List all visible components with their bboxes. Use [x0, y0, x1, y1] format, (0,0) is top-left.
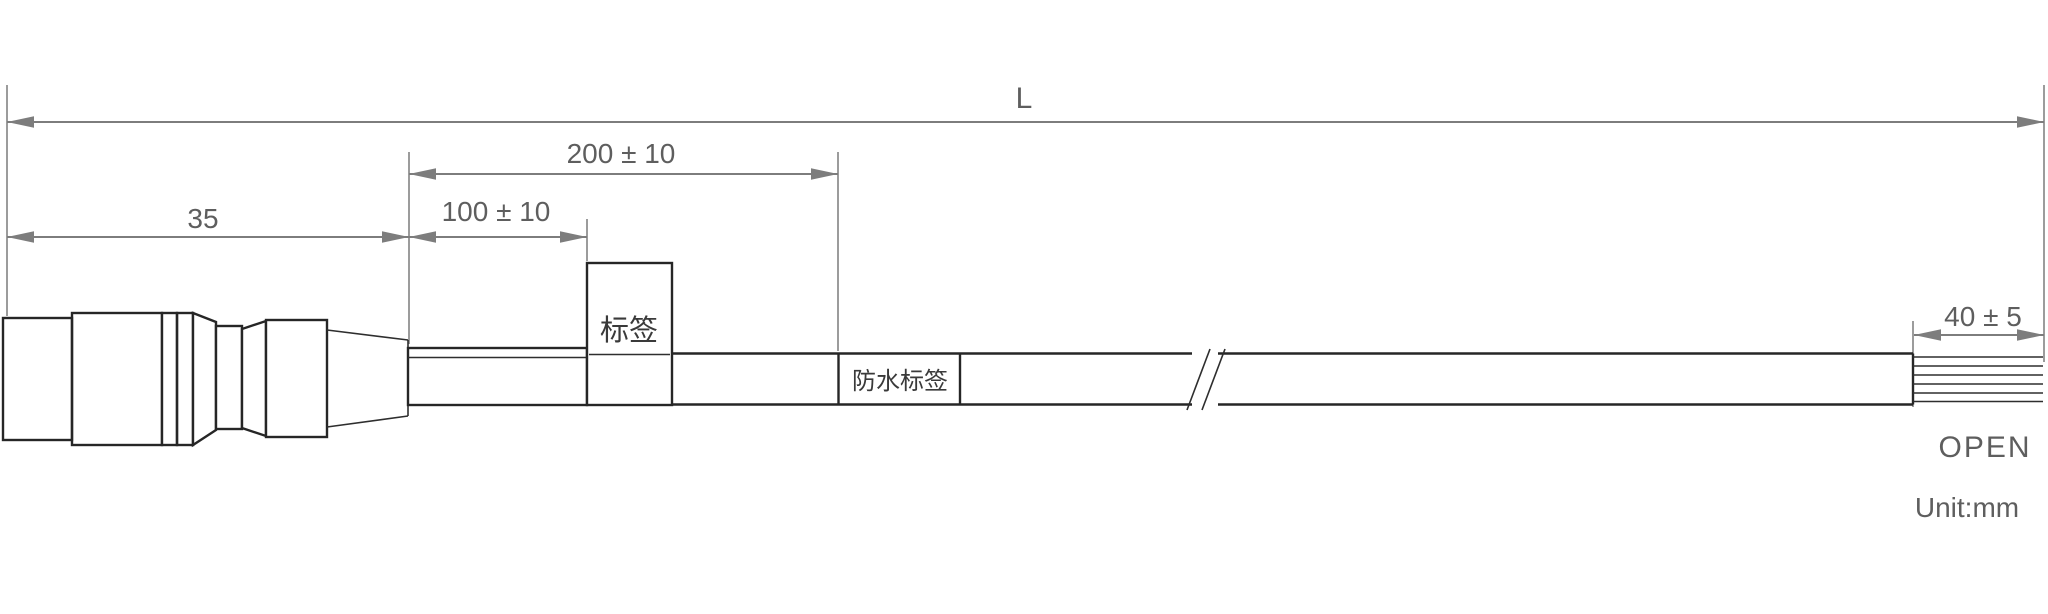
connector-rear-body [266, 320, 327, 437]
break-mark-line [1187, 349, 1210, 410]
connector-front-body [3, 318, 72, 440]
arrowhead-right-icon [382, 231, 409, 243]
wire-end-open-label: OPEN [1938, 431, 2031, 464]
unit-note: Unit:mm [1915, 492, 2019, 523]
arrowhead-right-icon [811, 168, 838, 180]
connector-flare-section [242, 321, 266, 436]
arrowhead-right-icon [560, 231, 587, 243]
connector-knurled-ring [177, 313, 193, 445]
dim-label-tube-section: 200 ± 10 [567, 138, 676, 169]
heat-shrink-tube-section [408, 348, 587, 405]
arrowhead-left-icon [409, 168, 436, 180]
boot-taper-top-line [327, 330, 408, 340]
cable-label-text: 标签 [600, 314, 658, 347]
arrowhead-right-icon [2017, 116, 2044, 128]
break-mark-line [1202, 349, 1225, 410]
connector-spacer-ring [162, 313, 177, 445]
arrowhead-left-icon [7, 116, 34, 128]
arrowhead-left-icon [409, 231, 436, 243]
boot-taper-bottom-line [327, 416, 408, 427]
dim-label-connector-length: 35 [187, 203, 218, 234]
dim-label-label-position: 100 ± 10 [442, 196, 551, 227]
dim-label-overall-length: L [1016, 82, 1033, 115]
arrowhead-left-icon [7, 231, 34, 243]
connector-neck-section [216, 326, 242, 429]
cable-assembly-drawing: L 200 ± 10 100 ± 10 35 40 ± 5 标签 防水标签 [0, 0, 2048, 614]
connector-knurled-grip [72, 313, 162, 445]
dim-label-strip-length: 40 ± 5 [1944, 301, 2022, 332]
connector-taper-section [193, 313, 216, 445]
technical-drawing-canvas: L 200 ± 10 100 ± 10 35 40 ± 5 标签 防水标签 [0, 0, 2048, 614]
waterproof-label-text: 防水标签 [852, 368, 948, 395]
wire-ends [1913, 357, 2043, 402]
arrowhead-left-icon [1914, 329, 1941, 341]
